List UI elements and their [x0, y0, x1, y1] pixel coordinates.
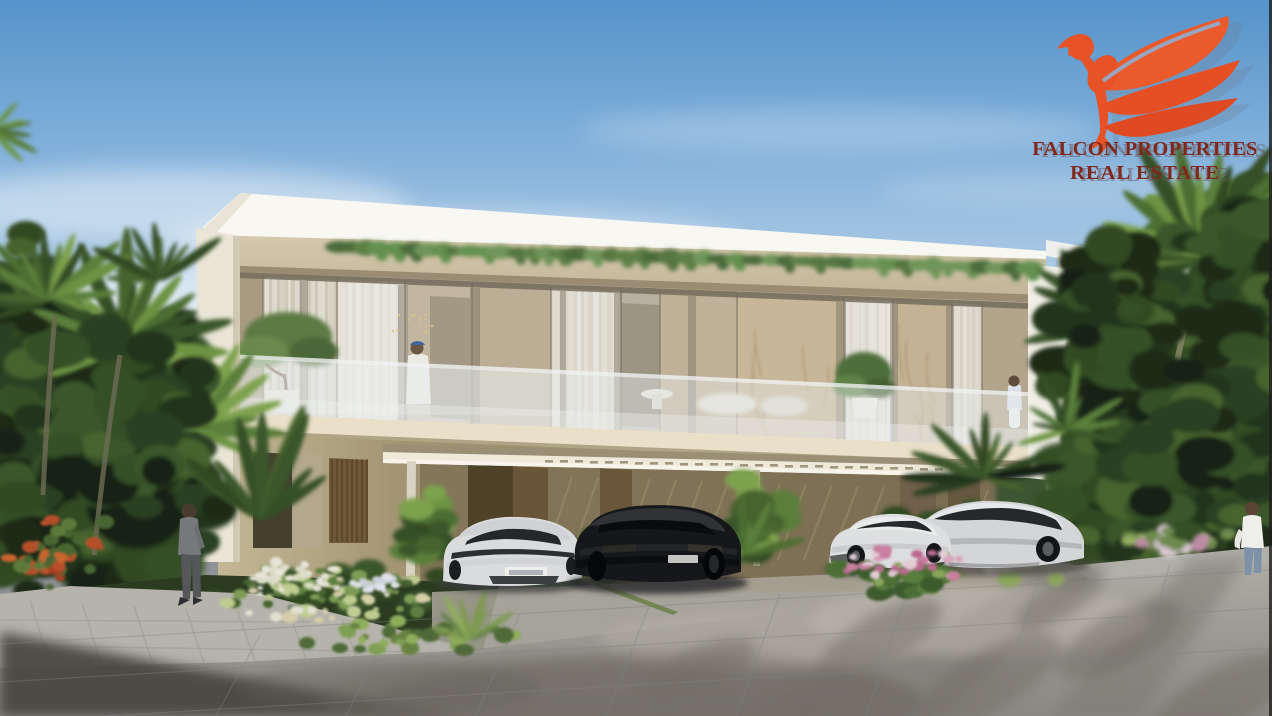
svg-text:REAL ESTATE: REAL ESTATE [1070, 162, 1220, 184]
svg-text:FALCON PROPERTIES: FALCON PROPERTIES [1032, 138, 1258, 160]
